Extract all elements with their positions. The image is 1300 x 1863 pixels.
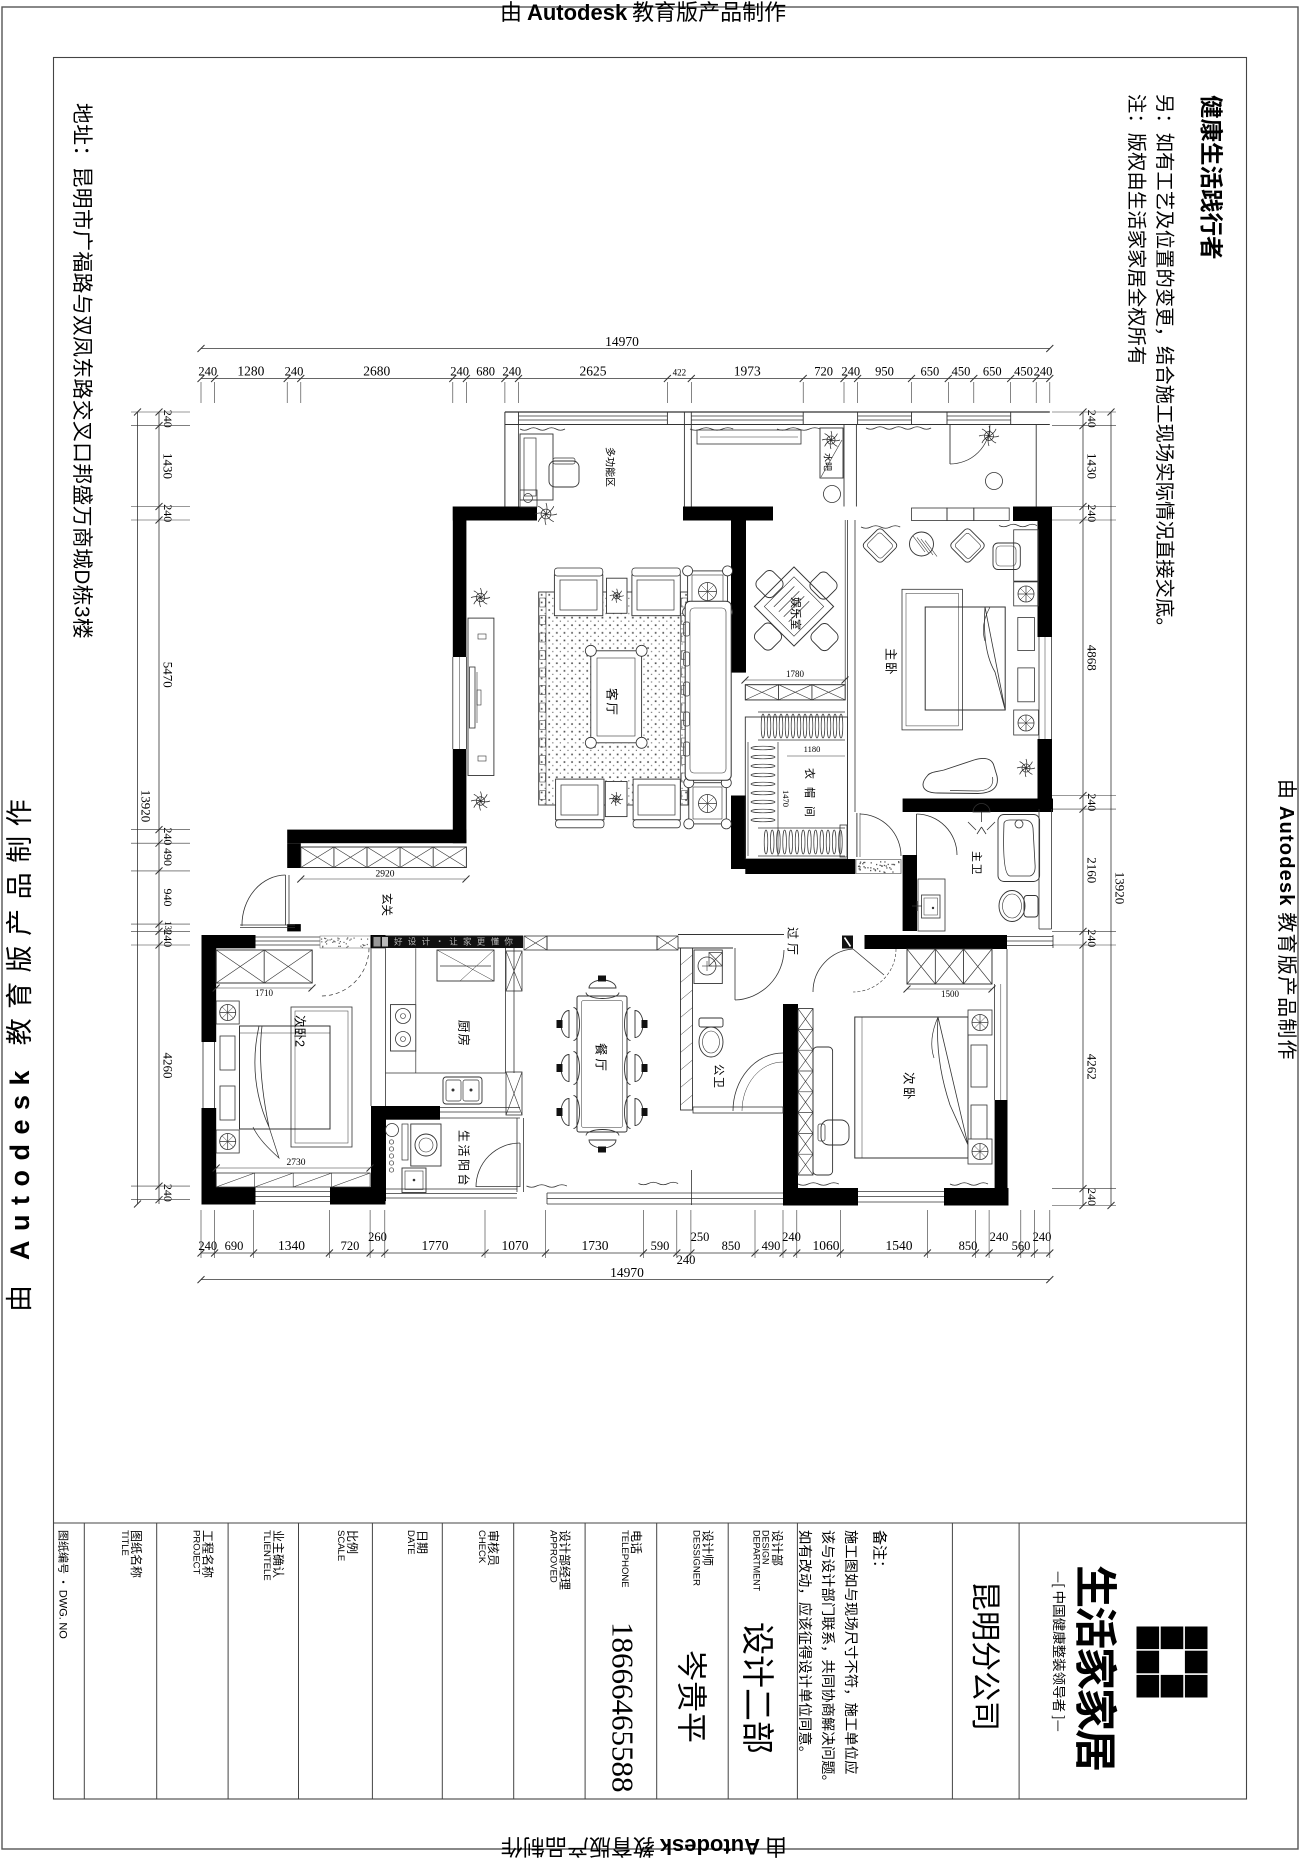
svg-text:设计部: 设计部 bbox=[769, 1530, 786, 1566]
svg-text:1710: 1710 bbox=[255, 988, 274, 998]
svg-text:2730: 2730 bbox=[287, 1158, 306, 1168]
svg-text:多功能区: 多功能区 bbox=[604, 447, 619, 487]
svg-text:由 Autodesk 教育版产品制作: 由 Autodesk 教育版产品制作 bbox=[0, 790, 37, 1312]
svg-text:DEPARTMENT: DEPARTMENT bbox=[751, 1530, 761, 1592]
svg-text:240: 240 bbox=[1085, 504, 1099, 522]
svg-text:422: 422 bbox=[673, 368, 687, 378]
svg-text:240: 240 bbox=[161, 929, 175, 947]
svg-text:娱乐室: 娱乐室 bbox=[788, 597, 804, 630]
svg-text:240: 240 bbox=[161, 410, 175, 428]
svg-text:健康生活践行者: 健康生活践行者 bbox=[1196, 95, 1230, 260]
svg-text:1180: 1180 bbox=[804, 744, 821, 754]
svg-text:1060: 1060 bbox=[813, 1238, 840, 1253]
svg-text:650: 650 bbox=[983, 365, 1002, 379]
svg-text:DESSIGNER: DESSIGNER bbox=[691, 1530, 702, 1586]
svg-text:施工图如与现场尺寸不符，施工单位应: 施工图如与现场尺寸不符，施工单位应 bbox=[841, 1530, 861, 1775]
svg-text:5470: 5470 bbox=[161, 662, 176, 688]
svg-text:公卫: 公卫 bbox=[711, 1064, 727, 1089]
svg-text:13920: 13920 bbox=[139, 790, 154, 823]
svg-text:260: 260 bbox=[368, 1230, 387, 1244]
svg-text:该与设计部门联系，共同协商解决问题。: 该与设计部门联系，共同协商解决问题。 bbox=[818, 1530, 838, 1789]
svg-text:APPROVED: APPROVED bbox=[548, 1530, 559, 1583]
svg-text:TELEPHONE: TELEPHONE bbox=[619, 1530, 630, 1588]
svg-text:餐厅: 餐厅 bbox=[593, 1043, 612, 1074]
svg-text:主卧: 主卧 bbox=[883, 648, 902, 676]
svg-text:950: 950 bbox=[875, 365, 894, 379]
svg-text:690: 690 bbox=[225, 1239, 244, 1253]
svg-text:850: 850 bbox=[722, 1239, 741, 1253]
svg-text:过厅: 过厅 bbox=[785, 927, 802, 959]
svg-text:240: 240 bbox=[450, 365, 469, 379]
svg-text:590: 590 bbox=[651, 1239, 670, 1253]
svg-text:生活阳台: 生活阳台 bbox=[456, 1130, 473, 1188]
svg-text:TITLE: TITLE bbox=[119, 1530, 130, 1556]
svg-text:由 Autodesk 教育版产品制作: 由 Autodesk 教育版产品制作 bbox=[1274, 779, 1300, 1061]
svg-text:490: 490 bbox=[762, 1239, 781, 1253]
svg-text:生活家家居: 生活家家居 bbox=[1067, 1565, 1129, 1770]
svg-text:图纸编号 · DWG. NO: 图纸编号 · DWG. NO bbox=[56, 1530, 72, 1639]
svg-text:1070: 1070 bbox=[502, 1238, 529, 1253]
svg-text:14970: 14970 bbox=[610, 1265, 644, 1280]
svg-text:1430: 1430 bbox=[1085, 453, 1100, 479]
svg-text:14970: 14970 bbox=[605, 334, 639, 349]
svg-text:720: 720 bbox=[341, 1239, 360, 1253]
svg-text:490: 490 bbox=[161, 848, 175, 866]
svg-text:衣帽间: 衣帽间 bbox=[802, 768, 818, 825]
svg-text:4868: 4868 bbox=[1085, 645, 1100, 671]
svg-text:由 Autodesk 教育版产品制作: 由 Autodesk 教育版产品制作 bbox=[501, 1832, 787, 1858]
svg-text:13920: 13920 bbox=[1113, 872, 1128, 905]
svg-text:240: 240 bbox=[198, 365, 217, 379]
svg-text:250: 250 bbox=[691, 1230, 710, 1244]
svg-text:1280: 1280 bbox=[237, 364, 264, 379]
svg-text:1430: 1430 bbox=[161, 453, 176, 479]
svg-text:PROJECT: PROJECT bbox=[191, 1530, 202, 1575]
svg-text:玄关: 玄关 bbox=[379, 893, 395, 916]
svg-text:1780: 1780 bbox=[786, 669, 805, 679]
svg-text:1470: 1470 bbox=[781, 790, 791, 807]
svg-text:DATE: DATE bbox=[405, 1530, 416, 1555]
svg-text:1973: 1973 bbox=[734, 364, 761, 379]
svg-text:由 Autodesk 教育版产品制作: 由 Autodesk 教育版产品制作 bbox=[500, 0, 786, 27]
svg-text:厨房: 厨房 bbox=[456, 1020, 475, 1047]
svg-text:240: 240 bbox=[677, 1253, 696, 1267]
svg-text:主卫: 主卫 bbox=[969, 851, 985, 876]
svg-text:备注：: 备注： bbox=[870, 1530, 891, 1575]
svg-text:地址：昆明市广福路与双凤东路交叉口邦盛万商城D栋3楼: 地址：昆明市广福路与双凤东路交叉口邦盛万商城D栋3楼 bbox=[69, 103, 99, 639]
svg-text:240: 240 bbox=[1085, 793, 1099, 811]
svg-text:240: 240 bbox=[1085, 929, 1099, 947]
svg-text:680: 680 bbox=[476, 365, 495, 379]
svg-text:650: 650 bbox=[921, 365, 940, 379]
svg-text:18666465588: 18666465588 bbox=[606, 1622, 641, 1793]
svg-text:240: 240 bbox=[1033, 1230, 1052, 1244]
svg-text:1500: 1500 bbox=[941, 989, 960, 999]
svg-text:240: 240 bbox=[161, 504, 175, 522]
svg-text:TLIENTELE: TLIENTELE bbox=[261, 1530, 272, 1581]
svg-text:岑贵平: 岑贵平 bbox=[672, 1650, 717, 1743]
svg-text:次卧: 次卧 bbox=[901, 1072, 920, 1102]
svg-text:560: 560 bbox=[1012, 1239, 1031, 1253]
svg-text:2160: 2160 bbox=[1085, 857, 1100, 883]
svg-text:设计二部: 设计二部 bbox=[736, 1622, 784, 1754]
svg-text:240: 240 bbox=[782, 1230, 801, 1244]
svg-text:850: 850 bbox=[959, 1239, 978, 1253]
svg-text:CHECK: CHECK bbox=[476, 1530, 487, 1564]
svg-text:240: 240 bbox=[841, 365, 860, 379]
svg-text:水吧: 水吧 bbox=[822, 453, 835, 471]
svg-text:次卧2: 次卧2 bbox=[292, 1015, 311, 1047]
svg-text:客厅: 客厅 bbox=[604, 688, 623, 717]
svg-text:240: 240 bbox=[161, 1184, 175, 1202]
svg-text:450: 450 bbox=[952, 365, 971, 379]
svg-text:1540: 1540 bbox=[886, 1238, 913, 1253]
svg-text:昆明分公司: 昆明分公司 bbox=[966, 1581, 1010, 1731]
svg-text:SCALE: SCALE bbox=[335, 1530, 346, 1561]
svg-text:1770: 1770 bbox=[422, 1238, 449, 1253]
svg-text:如有改动，应该征得设计单位同意。: 如有改动，应该征得设计单位同意。 bbox=[795, 1530, 815, 1760]
svg-text:1340: 1340 bbox=[278, 1238, 305, 1253]
svg-text:2680: 2680 bbox=[363, 364, 390, 379]
svg-text:240: 240 bbox=[1085, 410, 1099, 428]
svg-text:450: 450 bbox=[1014, 365, 1033, 379]
svg-text:240: 240 bbox=[502, 365, 521, 379]
svg-text:好设计·让家更懂你: 好设计·让家更懂你 bbox=[394, 936, 518, 948]
svg-text:—[ 中国健康整装领导者 ]—: —[ 中国健康整装领导者 ]— bbox=[1050, 1571, 1070, 1732]
svg-text:240: 240 bbox=[990, 1230, 1009, 1244]
svg-text:4262: 4262 bbox=[1085, 1054, 1100, 1080]
svg-text:2625: 2625 bbox=[579, 364, 606, 379]
svg-text:240: 240 bbox=[161, 827, 175, 845]
svg-text:240: 240 bbox=[1034, 365, 1053, 379]
svg-text:1730: 1730 bbox=[582, 1238, 609, 1253]
svg-text:4260: 4260 bbox=[161, 1053, 176, 1079]
svg-text:720: 720 bbox=[814, 365, 833, 379]
svg-text:940: 940 bbox=[161, 889, 175, 907]
svg-text:240: 240 bbox=[1085, 1188, 1099, 1206]
svg-text:240: 240 bbox=[198, 1239, 217, 1253]
svg-text:另：如有工艺及位置的变更，结合施工现场实际情况直接交底。: 另：如有工艺及位置的变更，结合施工现场实际情况直接交底。 bbox=[1152, 94, 1180, 637]
svg-text:注：版权由生活家家居全权所有: 注：版权由生活家家居全权所有 bbox=[1124, 94, 1152, 365]
svg-text:2920: 2920 bbox=[376, 870, 395, 880]
svg-text:240: 240 bbox=[285, 365, 304, 379]
